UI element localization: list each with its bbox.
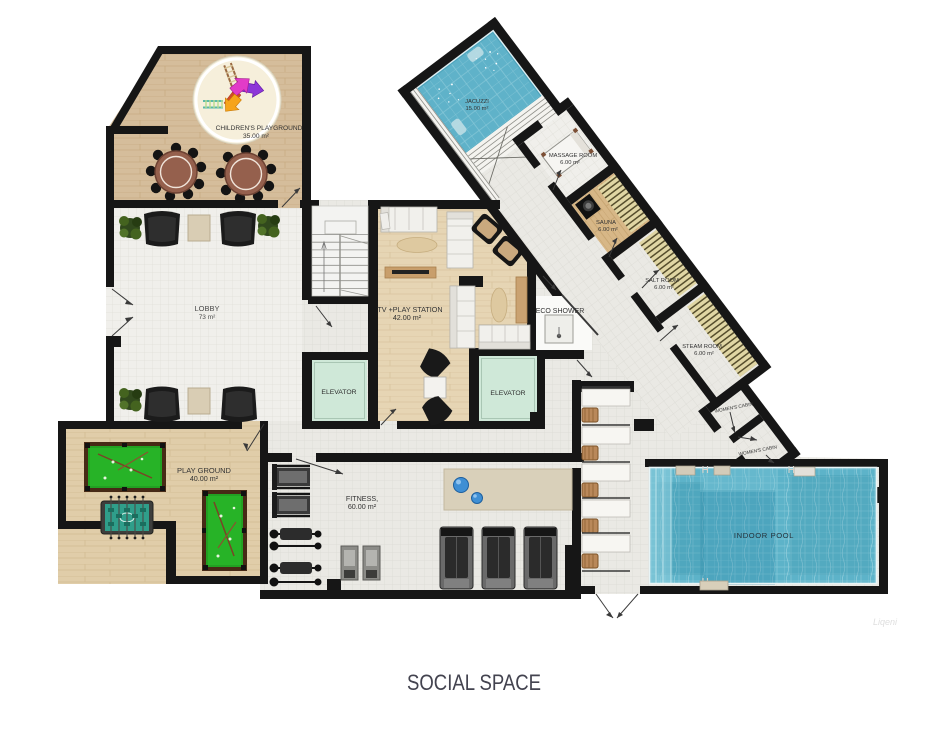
svg-text:40.00 m²: 40.00 m² — [190, 474, 219, 483]
svg-text:35.00 m²: 35.00 m² — [243, 133, 270, 140]
svg-text:15.00 m²: 15.00 m² — [466, 106, 489, 112]
svg-text:CHILDREN'S PLAYGROUND: CHILDREN'S PLAYGROUND — [216, 125, 303, 132]
svg-text:INDOOR POOL: INDOOR POOL — [734, 531, 794, 540]
svg-text:SOCIAL SPACE: SOCIAL SPACE — [407, 670, 541, 695]
svg-text:ELEVATOR: ELEVATOR — [321, 389, 356, 396]
svg-text:STEAM ROOM: STEAM ROOM — [682, 344, 722, 350]
svg-text:6.00 m²: 6.00 m² — [598, 227, 618, 233]
svg-text:60.00 m²: 60.00 m² — [348, 502, 377, 511]
svg-text:6.00 m²: 6.00 m² — [694, 351, 714, 357]
svg-text:Liqeni: Liqeni — [873, 617, 898, 627]
svg-text:42.00 m²: 42.00 m² — [393, 313, 422, 322]
svg-text:6.00 m²: 6.00 m² — [654, 285, 674, 291]
svg-text:SAUNA: SAUNA — [596, 220, 616, 226]
svg-text:6.00 m²: 6.00 m² — [560, 160, 580, 166]
svg-text:LOBBY: LOBBY — [194, 304, 219, 313]
svg-text:JACUZZI: JACUZZI — [465, 99, 489, 105]
svg-text:MASSAGE ROOM: MASSAGE ROOM — [549, 153, 597, 159]
svg-text:73 m²: 73 m² — [199, 314, 216, 321]
svg-text:ELEVATOR: ELEVATOR — [490, 390, 525, 397]
svg-text:ECO SHOWER: ECO SHOWER — [536, 308, 585, 315]
svg-text:SALT ROOM: SALT ROOM — [645, 278, 679, 284]
